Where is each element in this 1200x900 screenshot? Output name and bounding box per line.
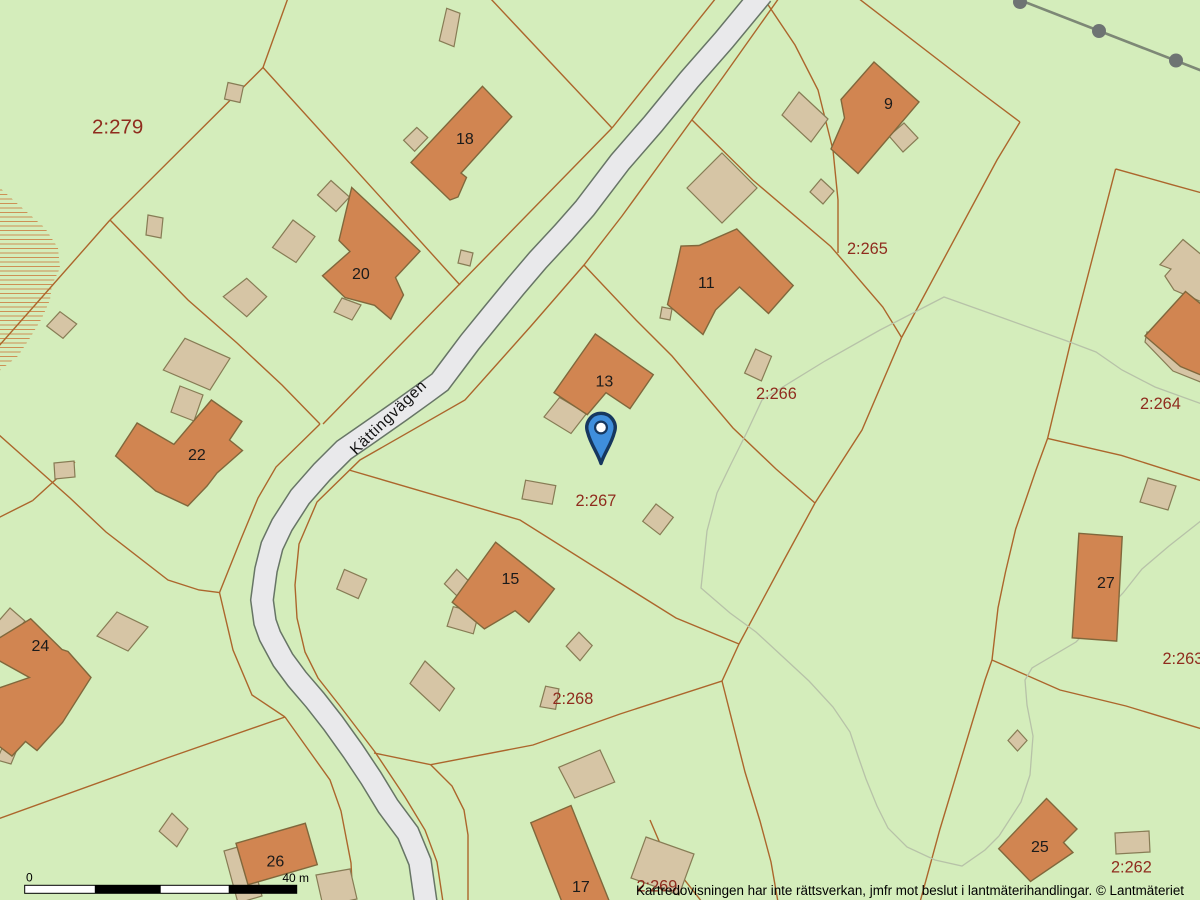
svg-text:27: 27: [1097, 575, 1115, 592]
svg-text:13: 13: [596, 374, 614, 391]
svg-text:2:266: 2:266: [756, 385, 797, 403]
svg-text:40 m: 40 m: [282, 871, 309, 885]
svg-text:2:264: 2:264: [1140, 395, 1181, 413]
svg-text:2:263: 2:263: [1163, 650, 1200, 668]
svg-text:2:268: 2:268: [553, 690, 594, 708]
svg-text:26: 26: [267, 854, 285, 871]
svg-text:24: 24: [32, 638, 50, 655]
svg-text:11: 11: [698, 275, 715, 292]
svg-text:25: 25: [1031, 839, 1049, 856]
svg-text:17: 17: [572, 879, 590, 896]
svg-text:18: 18: [456, 131, 474, 148]
svg-text:2:262: 2:262: [1111, 859, 1152, 877]
svg-text:2:265: 2:265: [847, 240, 888, 258]
svg-text:9: 9: [884, 96, 893, 113]
svg-text:22: 22: [188, 447, 206, 464]
svg-text:2:267: 2:267: [576, 492, 617, 510]
svg-text:20: 20: [352, 266, 370, 283]
svg-text:15: 15: [502, 571, 520, 588]
svg-text:2:279: 2:279: [92, 116, 143, 139]
svg-text:0: 0: [26, 871, 33, 885]
svg-text:Kartredovisningen har inte rät: Kartredovisningen har inte rättsverkan, …: [636, 883, 1184, 898]
